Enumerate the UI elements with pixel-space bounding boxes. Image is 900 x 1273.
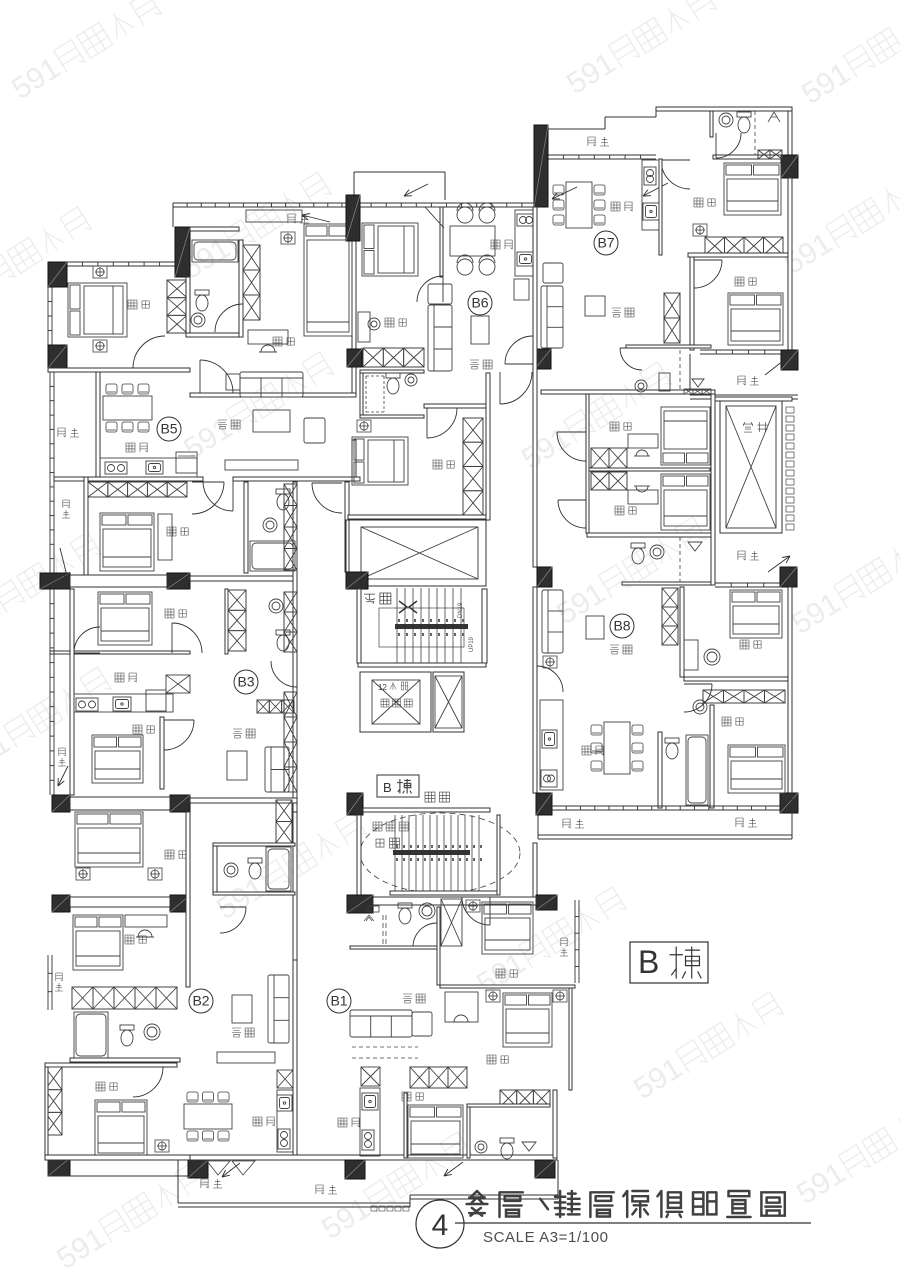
svg-text:SCALE A3=1/100: SCALE A3=1/100 xyxy=(483,1229,609,1246)
svg-text:B1: B1 xyxy=(330,993,347,1009)
svg-text:4: 4 xyxy=(432,1209,449,1242)
svg-text:DN19: DN19 xyxy=(458,602,464,618)
svg-text:B5: B5 xyxy=(160,421,177,437)
svg-text:B8: B8 xyxy=(613,618,630,634)
svg-text:B: B xyxy=(638,944,659,980)
svg-text:B6: B6 xyxy=(471,295,488,311)
svg-text:B2: B2 xyxy=(192,993,209,1009)
svg-text:B7: B7 xyxy=(597,235,614,251)
svg-text:12: 12 xyxy=(378,683,387,692)
svg-text:UP19: UP19 xyxy=(469,636,475,652)
svg-text:B: B xyxy=(383,780,392,795)
svg-text:B3: B3 xyxy=(237,674,254,690)
